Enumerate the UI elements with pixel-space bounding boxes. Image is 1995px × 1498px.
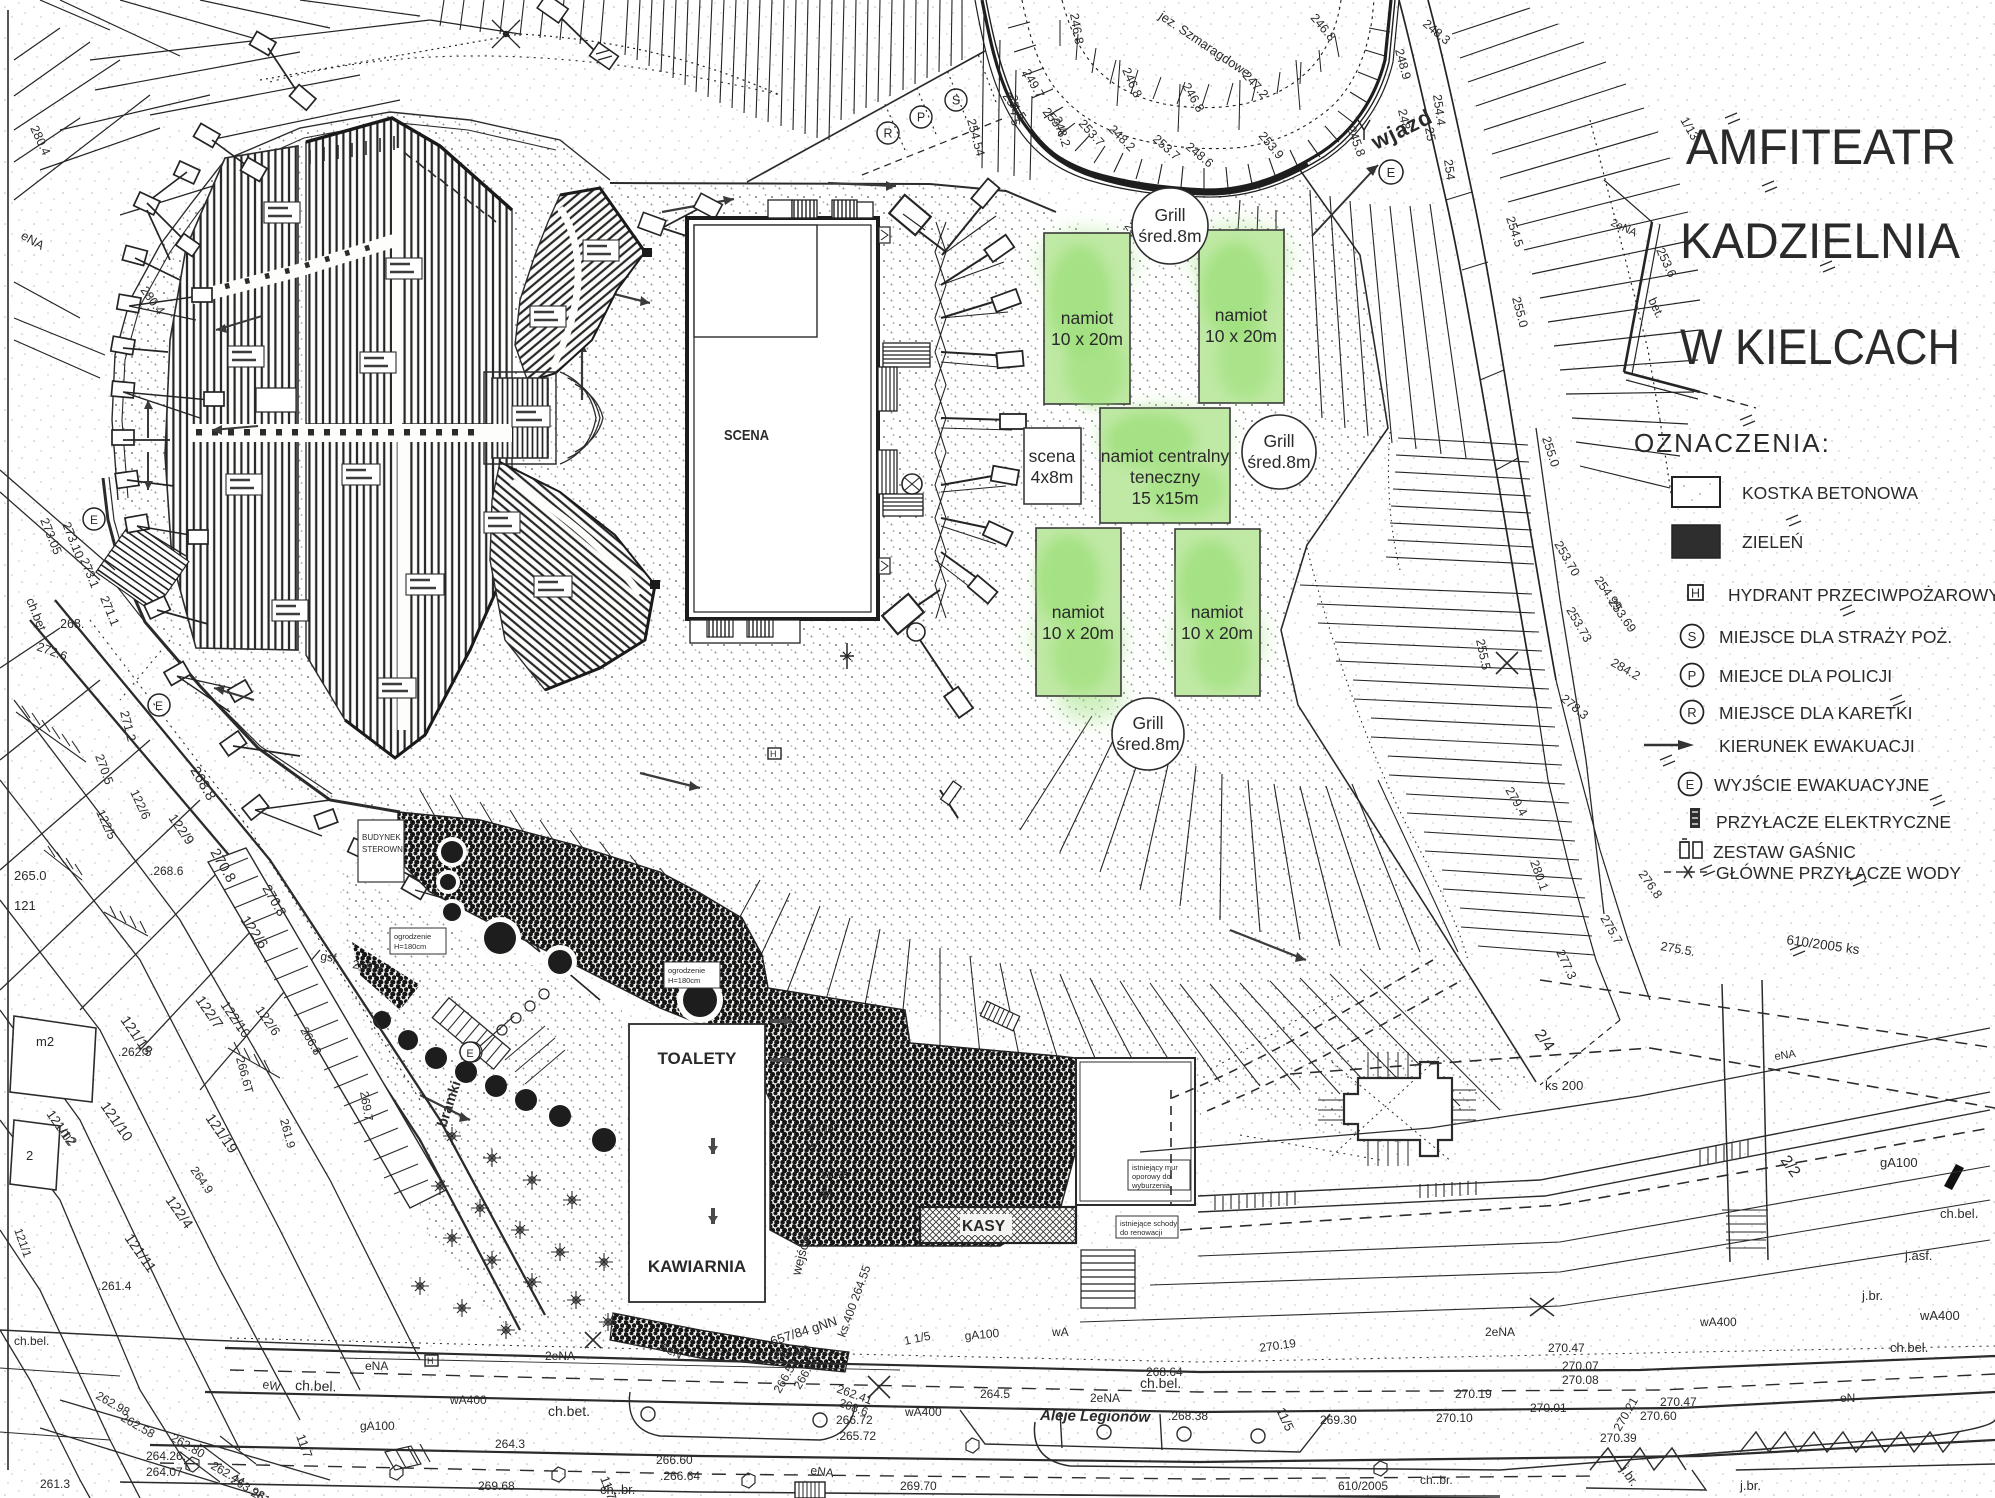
svg-text:10 x 20m: 10 x 20m	[1181, 623, 1253, 643]
svg-text:ch..br.: ch..br.	[1420, 1473, 1453, 1487]
svg-text:270.60: 270.60	[1640, 1409, 1677, 1423]
svg-text:270.47: 270.47	[1548, 1341, 1585, 1355]
svg-text:j.asf.: j.asf.	[1904, 1248, 1932, 1263]
svg-text:264.26.: 264.26.	[146, 1449, 186, 1463]
svg-text:P: P	[917, 111, 925, 125]
svg-text:eNA: eNA	[365, 1359, 388, 1373]
svg-text:scena: scena	[1029, 446, 1076, 466]
svg-text:S: S	[1688, 629, 1697, 644]
svg-text:2: 2	[26, 1148, 33, 1163]
svg-text:4x8m: 4x8m	[1031, 467, 1074, 487]
svg-text:KASY: KASY	[962, 1218, 1006, 1235]
svg-text:śred.8m: śred.8m	[1116, 734, 1179, 754]
svg-text:śred.8m: śred.8m	[1247, 452, 1310, 472]
svg-text:Aleje Legionów: Aleje Legionów	[1039, 1407, 1152, 1426]
svg-text:254: 254	[1441, 158, 1458, 181]
svg-text:j.br.: j.br.	[1861, 1288, 1883, 1303]
svg-text:KAWIARNIA: KAWIARNIA	[648, 1257, 746, 1276]
svg-text:E: E	[90, 513, 98, 527]
svg-text:.268.6: .268.6	[150, 864, 184, 878]
svg-text:269.68: 269.68	[478, 1479, 515, 1493]
svg-text:269.30: 269.30	[1320, 1413, 1357, 1427]
svg-text:j.br.: j.br.	[1739, 1478, 1761, 1493]
svg-text:MIEJSCE DLA KARETKI: MIEJSCE DLA KARETKI	[1719, 703, 1913, 723]
svg-text:.266.64: .266.64	[660, 1469, 700, 1483]
svg-text:GŁÓWNE PRZYŁĄCZE WODY: GŁÓWNE PRZYŁĄCZE WODY	[1716, 862, 1961, 883]
svg-text:HYDRANT PRZECIWPOŻAROWY: HYDRANT PRZECIWPOŻAROWY	[1728, 585, 1995, 605]
svg-text:Grill: Grill	[1132, 713, 1163, 733]
svg-text:.262.5: .262.5	[118, 1045, 152, 1059]
svg-text:E: E	[1686, 777, 1695, 792]
svg-text:śred.8m: śred.8m	[1138, 226, 1201, 246]
svg-text:2eNA: 2eNA	[545, 1349, 575, 1363]
svg-text:KADZIELNIA: KADZIELNIA	[1680, 213, 1961, 269]
svg-text:270.01: 270.01	[1530, 1401, 1567, 1415]
svg-text:teneczny: teneczny	[1130, 467, 1200, 487]
svg-text:namiot: namiot	[1215, 305, 1268, 325]
svg-text:AMFITEATR: AMFITEATR	[1686, 119, 1956, 175]
svg-text:266.60: 266.60	[656, 1453, 693, 1467]
svg-text:ZIELEŃ: ZIELEŃ	[1742, 532, 1803, 552]
svg-text:2eNA: 2eNA	[1090, 1391, 1120, 1405]
svg-text:m2: m2	[36, 1034, 54, 1049]
svg-text:do renowacji: do renowacji	[1120, 1228, 1162, 1237]
svg-text:KOSTKA BETONOWA: KOSTKA BETONOWA	[1742, 483, 1918, 503]
svg-text:namiot: namiot	[1061, 308, 1114, 328]
svg-text:R: R	[1687, 705, 1696, 720]
svg-text:STEROWNI: STEROWNI	[362, 845, 405, 854]
svg-text:264.3: 264.3	[495, 1437, 525, 1451]
svg-text:E: E	[466, 1048, 473, 1060]
svg-text:270.08: 270.08	[1562, 1373, 1599, 1387]
svg-text:ch.bel.: ch.bel.	[295, 1377, 337, 1394]
svg-text:ZESTAW GAŚNIC: ZESTAW GAŚNIC	[1713, 841, 1856, 862]
svg-text:H: H	[1691, 587, 1700, 601]
svg-text:wA400: wA400	[1919, 1308, 1960, 1323]
svg-text:E: E	[1387, 165, 1396, 180]
svg-text:.268.38: .268.38	[1168, 1409, 1208, 1423]
svg-text:wyburzenia: wyburzenia	[1131, 1181, 1171, 1190]
svg-text:BUDYNEK: BUDYNEK	[362, 833, 401, 842]
svg-text:ogrodzenie: ogrodzenie	[394, 932, 431, 941]
svg-text:Grill: Grill	[1263, 431, 1294, 451]
svg-text:264.5: 264.5	[980, 1387, 1010, 1401]
svg-text:KIERUNEK EWAKUACJI: KIERUNEK EWAKUACJI	[1719, 736, 1915, 756]
svg-text:271.10: 271.10	[806, 1124, 834, 1134]
svg-text:ch..br.: ch..br.	[600, 1482, 635, 1497]
svg-text:eN: eN	[1840, 1391, 1855, 1405]
svg-text:H: H	[770, 749, 777, 759]
svg-text:270.47: 270.47	[1660, 1395, 1697, 1409]
svg-text:gA100: gA100	[360, 1419, 395, 1433]
svg-text:270.10: 270.10	[1436, 1411, 1473, 1425]
svg-text:H: H	[427, 1356, 434, 1366]
svg-text:.261.4: .261.4	[98, 1279, 132, 1293]
svg-text:wA400: wA400	[904, 1405, 942, 1419]
svg-text:WYJŚCIE EWAKUACYJNE: WYJŚCIE EWAKUACYJNE	[1714, 774, 1929, 795]
svg-text:610/2005: 610/2005	[1338, 1479, 1388, 1493]
svg-text:namiot: namiot	[1052, 602, 1105, 622]
svg-text:269.70: 269.70	[900, 1479, 937, 1493]
svg-text:15 x15m: 15 x15m	[1131, 488, 1198, 508]
svg-text:H=180cm: H=180cm	[394, 942, 426, 951]
svg-text:10 x 20m: 10 x 20m	[1042, 623, 1114, 643]
svg-text:ch.bel.: ch.bel.	[1890, 1340, 1928, 1355]
svg-text:R: R	[883, 127, 892, 141]
svg-text:270.39: 270.39	[1600, 1431, 1637, 1445]
svg-text:268.64: 268.64	[1146, 1365, 1183, 1379]
svg-text:namiot centralny: namiot centralny	[1101, 446, 1230, 466]
svg-text:PRZYŁACZE ELEKTRYCZNE: PRZYŁACZE ELEKTRYCZNE	[1716, 812, 1951, 832]
svg-text:SCENA: SCENA	[724, 427, 769, 444]
svg-text:E: E	[155, 699, 163, 713]
svg-text:MIEJSCE DLA STRAŻY POŻ.: MIEJSCE DLA STRAŻY POŻ.	[1719, 627, 1952, 647]
svg-text:ks 200: ks 200	[1545, 1078, 1583, 1093]
svg-text:TOALETY: TOALETY	[657, 1049, 737, 1068]
svg-text:265.0: 265.0	[14, 868, 47, 883]
svg-text:MIEJCE DLA POLICJI: MIEJCE DLA POLICJI	[1719, 666, 1892, 686]
svg-text:OZNACZENIA:: OZNACZENIA:	[1634, 428, 1831, 458]
svg-text:261.3: 261.3	[40, 1477, 70, 1491]
svg-text:Grill: Grill	[1154, 205, 1185, 225]
svg-text:270.19: 270.19	[1455, 1387, 1492, 1401]
svg-text:P: P	[1688, 668, 1697, 683]
svg-text:ch.bel.: ch.bel.	[14, 1334, 49, 1348]
svg-text:H=180cm: H=180cm	[668, 976, 700, 985]
svg-text:10 x 20m: 10 x 20m	[1205, 326, 1277, 346]
svg-text:ogrodzenie: ogrodzenie	[668, 966, 705, 975]
svg-text:oporowy do: oporowy do	[1132, 1172, 1171, 1181]
svg-text:S: S	[952, 94, 960, 108]
svg-text:270.07: 270.07	[1562, 1359, 1599, 1373]
svg-text:istniejące schody: istniejące schody	[1120, 1219, 1177, 1228]
svg-text:wA400: wA400	[449, 1393, 487, 1407]
svg-text:namiot: namiot	[1191, 602, 1244, 622]
svg-text:ch.bel.: ch.bel.	[1940, 1206, 1978, 1221]
svg-text:2eNA: 2eNA	[1485, 1325, 1515, 1339]
svg-text:266.72: 266.72	[836, 1413, 873, 1427]
svg-text:W KIELCACH: W KIELCACH	[1680, 319, 1960, 375]
svg-text:.265.72: .265.72	[836, 1429, 876, 1443]
svg-text:ch.bet.: ch.bet.	[548, 1403, 590, 1419]
svg-text:gA100: gA100	[1880, 1155, 1918, 1170]
svg-text:wA: wA	[1051, 1325, 1069, 1339]
svg-text:121: 121	[14, 898, 36, 913]
svg-text:10 x 20m: 10 x 20m	[1051, 329, 1123, 349]
svg-text:271.78: 271.78	[820, 1170, 848, 1180]
svg-text:wA400: wA400	[1699, 1315, 1737, 1329]
